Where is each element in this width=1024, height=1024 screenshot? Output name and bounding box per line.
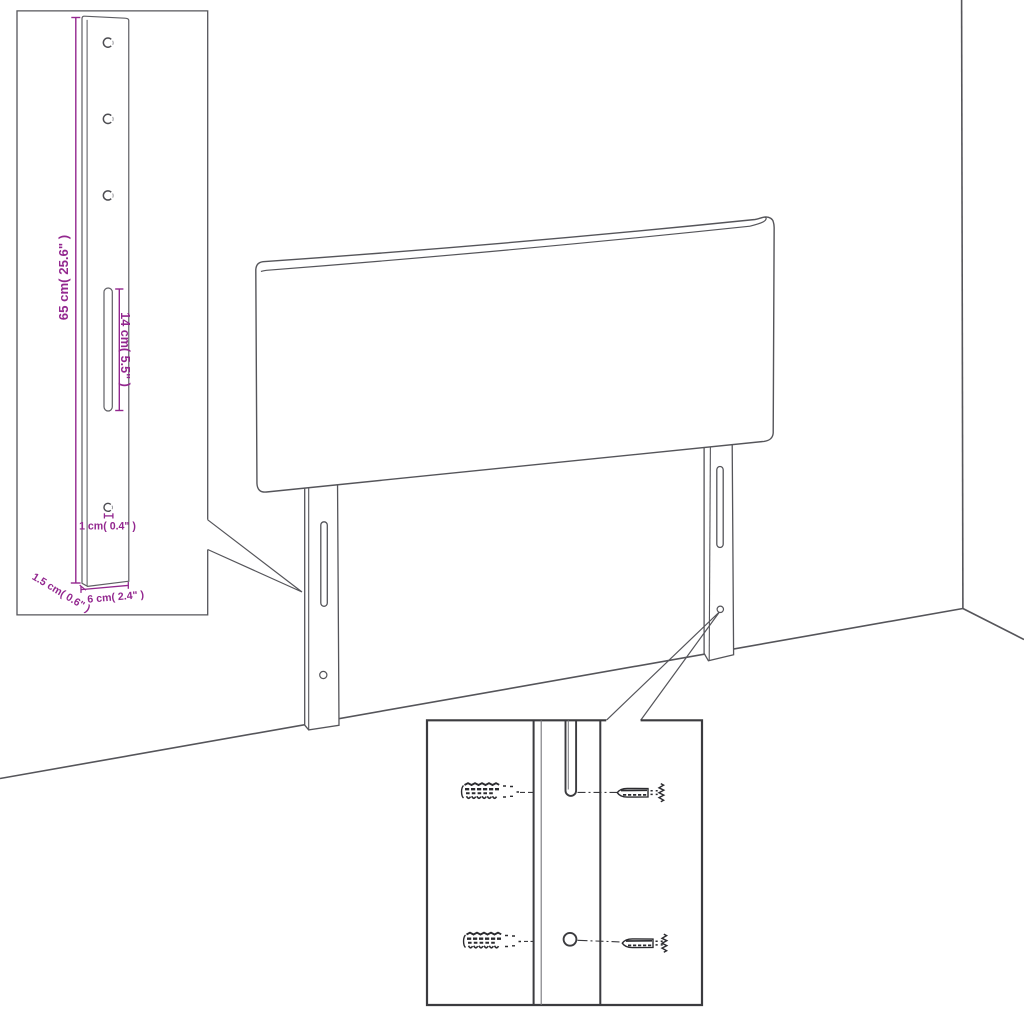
svg-text:65 cm( 25.6" ): 65 cm( 25.6" ) <box>56 235 71 320</box>
svg-text:1 cm( 0.4" ): 1 cm( 0.4" ) <box>79 521 136 533</box>
svg-text:14 cm( 5.5" ): 14 cm( 5.5" ) <box>118 312 132 387</box>
